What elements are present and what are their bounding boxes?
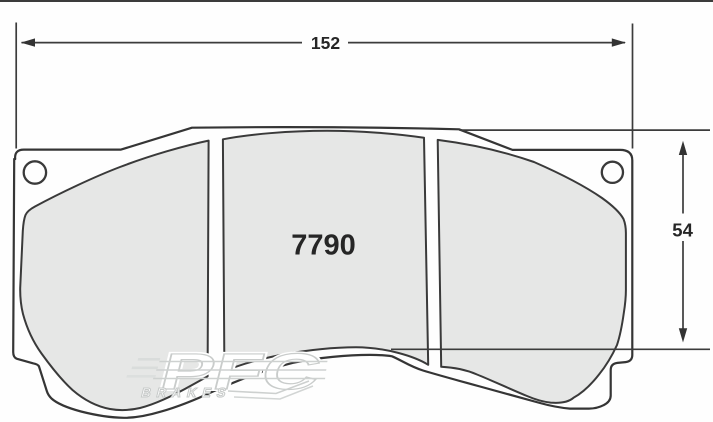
svg-text:54: 54 — [672, 220, 693, 241]
svg-text:152: 152 — [311, 33, 340, 53]
svg-text:7790: 7790 — [291, 230, 356, 262]
